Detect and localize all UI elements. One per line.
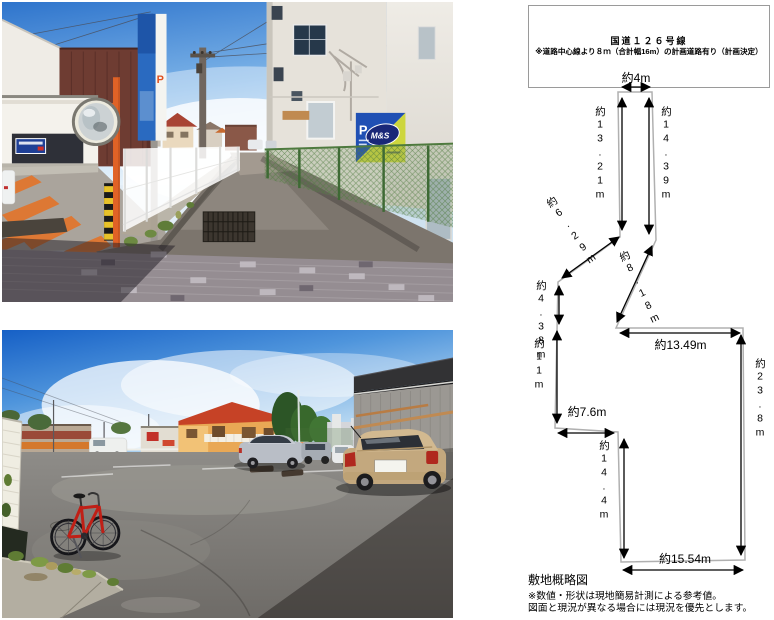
dim-bottom: 約15.54m xyxy=(635,550,735,567)
plan-caption: 敷地概略図 xyxy=(528,571,588,588)
window xyxy=(291,91,302,101)
distant-car xyxy=(248,140,263,150)
site-plan: 国道１２６号線 ※道路中心線より８ｍ（合計幅16m）の計画道路有り（計画決定） xyxy=(455,0,774,620)
dim-left-lower: 約11m xyxy=(532,338,547,393)
red-sign xyxy=(147,432,159,441)
corner-sign-logo: M&S xyxy=(371,131,390,141)
striped-bollard xyxy=(104,183,113,240)
vertical-sign-letter: P xyxy=(157,74,164,86)
parking-lot-photo xyxy=(2,330,453,618)
window xyxy=(272,6,283,20)
street-photo-canvas: P M&S xyxy=(2,2,453,302)
dim-mid-horizontal: 約13.49m xyxy=(633,336,728,353)
window xyxy=(307,102,334,139)
flag-pole xyxy=(298,390,299,450)
window xyxy=(293,25,326,56)
site-boundary xyxy=(555,92,745,562)
site-plan-geometry xyxy=(455,0,774,620)
distant-car xyxy=(266,141,277,149)
real-estate-flyer: P M&S xyxy=(0,0,774,620)
tail-light xyxy=(345,452,356,467)
window xyxy=(274,67,284,81)
plan-note-2: 図面と現況が異なる場合には現況を優先とします。 xyxy=(528,600,752,614)
shop-sign xyxy=(16,139,46,154)
parked-white-car xyxy=(2,170,15,204)
weeds xyxy=(158,221,174,231)
dim-pole-right: 約14.39m xyxy=(659,106,674,203)
license-plate xyxy=(375,460,407,473)
dim-right-side: 約23.8m xyxy=(753,358,768,441)
dim-top-frontage: 約4m xyxy=(601,69,671,86)
street-photo: P M&S xyxy=(2,2,453,302)
window xyxy=(418,27,435,60)
shutter-box xyxy=(283,111,310,120)
dim-pole-left: 約13.21m xyxy=(593,106,608,203)
dim-notch: 約7.6m xyxy=(555,403,619,420)
parking-photo-canvas xyxy=(2,330,453,618)
tail-light xyxy=(426,451,438,464)
dim-lower-left: 約14.4m xyxy=(597,440,612,523)
bike-saddle xyxy=(73,494,85,499)
